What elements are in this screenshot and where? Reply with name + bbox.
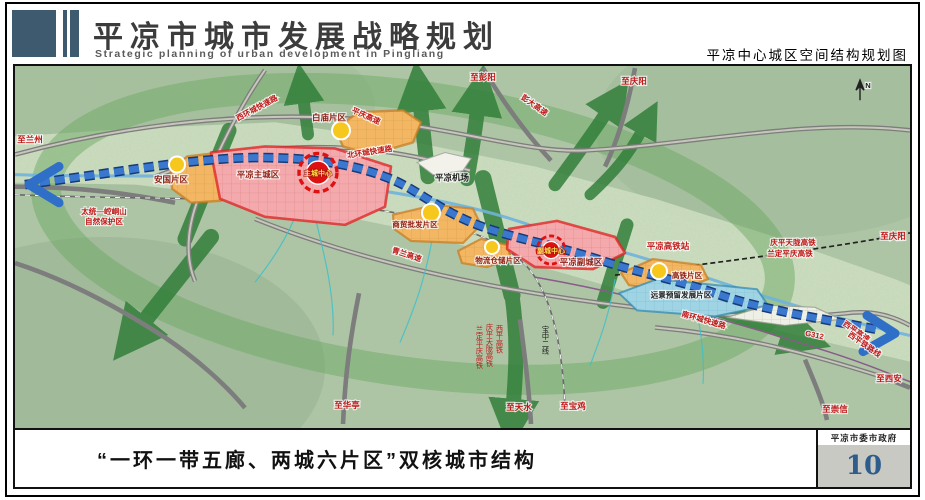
label-district-gaotie: 高铁片区 — [672, 270, 703, 280]
label-to-qingyang-north: 至庆阳 — [621, 76, 646, 86]
node-wuliu — [485, 240, 499, 254]
label-ldpq-hsr-south: 兰定平庆高铁 — [476, 325, 485, 370]
compass-label: N — [865, 81, 870, 90]
label-to-pengyang: 至彭阳 — [470, 72, 495, 82]
page-subtitle-en: Strategic planning of urban development … — [95, 48, 445, 60]
label-nature-reserve-1: 太统—崆峒山 — [81, 206, 127, 216]
label-district-baimiao: 白庙片区 — [312, 112, 346, 122]
label-airport: 平凉机场 — [435, 173, 469, 183]
header-accent-bar — [63, 10, 67, 57]
label-qptl-hsr-south: 庆平天陇高铁 — [486, 323, 495, 368]
label-baozhong-line2: 宝中二线 — [542, 325, 551, 355]
label-to-chongxin: 至崇信 — [822, 404, 848, 414]
planning-document-page: 平凉市城市发展战略规划 Strategic planning of urban … — [0, 0, 925, 500]
gov-label: 平凉市委市政府 — [818, 430, 910, 445]
map-panel: N 至兰州 西环城快速路 平庆高速 至彭阳 彭大高速 至庆阳 白庙片区 北环城快… — [15, 66, 910, 430]
label-sub-core: 副城中心 — [537, 246, 565, 255]
node-gaotie — [651, 263, 667, 279]
label-main-city: 平凉主城区 — [237, 170, 280, 180]
page-number: 10 — [818, 445, 910, 487]
map-sheet-title: 平凉中心城区空间结构规划图 — [707, 44, 909, 64]
label-qptl-hsr: 庆平天陇高铁 — [769, 237, 816, 247]
label-district-shangmao: 商贸批发片区 — [392, 219, 438, 229]
label-district-reserve: 远景预留发展片区 — [651, 289, 712, 299]
label-district-anguo: 安国片区 — [154, 175, 188, 185]
logo-block — [12, 10, 56, 57]
label-nature-reserve-2: 自然保护区 — [85, 216, 123, 226]
label-to-lanzhou: 至兰州 — [17, 134, 42, 144]
structure-caption: “一环一带五廊、两城六片区”双核城市结构 — [15, 430, 816, 487]
label-xiping-hsr: 西平高铁 — [496, 324, 505, 354]
label-main-core: 主城中心 — [304, 169, 332, 178]
gov-page-box: 平凉市委市政府 10 — [816, 430, 910, 487]
label-ldpq-hsr: 兰定平庆高铁 — [767, 248, 813, 258]
label-to-huating: 至华亭 — [334, 400, 360, 410]
header: 平凉市城市发展战略规划 Strategic planning of urban … — [7, 4, 918, 64]
inner-frame: N 至兰州 西环城快速路 平庆高速 至彭阳 彭大高速 至庆阳 白庙片区 北环城快… — [13, 64, 912, 489]
node-anguo — [169, 157, 185, 173]
label-sub-city: 平凉副城区 — [560, 257, 603, 267]
label-to-xian: 至西安 — [876, 374, 902, 384]
page-border: 平凉市城市发展战略规划 Strategic planning of urban … — [5, 2, 920, 497]
footer: “一环一带五廊、两城六片区”双核城市结构 平凉市委市政府 10 — [15, 430, 910, 487]
label-to-qingyang-east: 至庆阳 — [880, 231, 905, 241]
header-accent-bar — [70, 10, 79, 57]
label-to-tianshui: 至天水 — [506, 402, 532, 412]
node-baimiao — [332, 121, 350, 139]
label-to-baoji: 至宝鸡 — [560, 401, 586, 411]
label-hsr-station: 平凉高铁站 — [647, 241, 690, 251]
expansion-arrow-south — [512, 295, 516, 408]
label-district-wuliu: 物流仓储片区 — [475, 255, 521, 265]
planning-map: N 至兰州 西环城快速路 平庆高速 至彭阳 彭大高速 至庆阳 白庙片区 北环城快… — [15, 66, 910, 428]
